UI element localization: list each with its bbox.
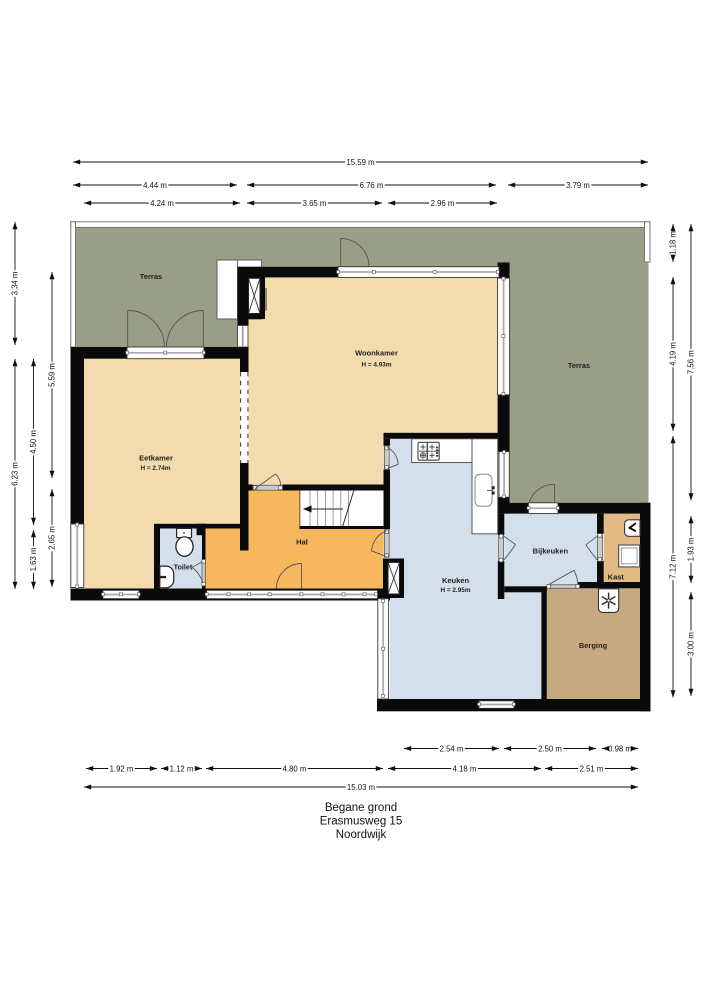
svg-text:3.34 m: 3.34 m	[11, 272, 20, 296]
svg-text:6.76 m: 6.76 m	[360, 181, 384, 190]
svg-text:7.12 m: 7.12 m	[669, 555, 678, 579]
svg-text:Terras: Terras	[140, 272, 162, 281]
svg-text:4.19 m: 4.19 m	[669, 342, 678, 366]
svg-text:2.96 m: 2.96 m	[431, 199, 455, 208]
svg-text:7.56 m: 7.56 m	[687, 350, 696, 374]
svg-text:4.50 m: 4.50 m	[29, 430, 38, 454]
svg-text:3.00 m: 3.00 m	[687, 632, 696, 656]
svg-text:Woonkamer: Woonkamer	[355, 349, 398, 358]
svg-text:2.54 m: 2.54 m	[440, 744, 464, 753]
svg-text:4.18 m: 4.18 m	[453, 764, 477, 773]
svg-text:H = 2.74m: H = 2.74m	[140, 465, 170, 472]
svg-text:H = 4.93m: H = 4.93m	[361, 362, 391, 369]
svg-text:1.92 m: 1.92 m	[110, 764, 134, 773]
svg-text:4.44 m: 4.44 m	[143, 181, 167, 190]
svg-text:Terras: Terras	[568, 361, 590, 370]
svg-text:5.59 m: 5.59 m	[48, 363, 57, 387]
svg-text:6.23 m: 6.23 m	[11, 462, 20, 486]
svg-text:Keuken: Keuken	[442, 576, 470, 585]
svg-text:4.80 m: 4.80 m	[283, 764, 307, 773]
svg-text:1.18 m: 1.18 m	[669, 231, 678, 255]
svg-text:Hal: Hal	[296, 538, 308, 547]
svg-text:15.03 m: 15.03 m	[347, 783, 375, 792]
svg-text:Noordwijk: Noordwijk	[336, 829, 387, 841]
svg-text:0.98 m: 0.98 m	[608, 744, 632, 753]
svg-text:Bijkeuken: Bijkeuken	[533, 547, 569, 556]
svg-text:1.12 m: 1.12 m	[170, 764, 194, 773]
svg-text:1.63 m: 1.63 m	[29, 548, 38, 572]
svg-text:Eetkamer: Eetkamer	[139, 454, 173, 463]
svg-text:2.51 m: 2.51 m	[580, 764, 604, 773]
svg-text:3.65 m: 3.65 m	[303, 199, 327, 208]
svg-text:Begane grond: Begane grond	[325, 802, 397, 814]
svg-text:3.79 m: 3.79 m	[566, 181, 590, 190]
svg-text:H = 2.95m: H = 2.95m	[440, 587, 470, 594]
svg-text:1.93 m: 1.93 m	[687, 538, 696, 562]
svg-text:Berging: Berging	[579, 641, 608, 650]
svg-text:4.24 m: 4.24 m	[150, 199, 174, 208]
svg-text:2.65 m: 2.65 m	[48, 526, 57, 550]
svg-text:Kast: Kast	[608, 572, 625, 581]
svg-text:2.50 m: 2.50 m	[538, 744, 562, 753]
svg-text:Toilet: Toilet	[174, 563, 193, 572]
svg-text:Erasmusweg 15: Erasmusweg 15	[320, 816, 402, 828]
svg-text:15.59 m: 15.59 m	[346, 158, 374, 167]
